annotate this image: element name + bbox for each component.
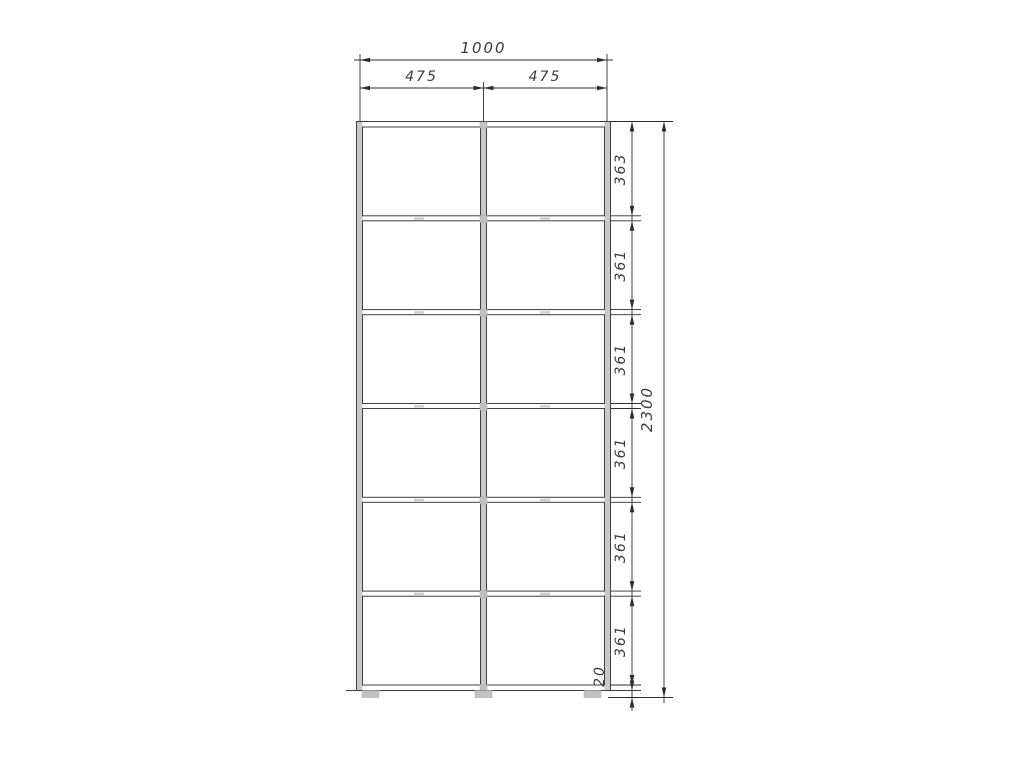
dowel-mark — [540, 499, 550, 502]
dowel-mark — [414, 593, 424, 596]
arrowhead-up — [630, 221, 635, 231]
dim-row-height-3: 361 — [613, 343, 629, 376]
cabinet-cell — [487, 596, 605, 685]
dim-column-width-2: 475 — [529, 69, 562, 85]
cabinet — [346, 122, 641, 698]
arrowhead-down — [630, 581, 635, 591]
arrowhead-down — [630, 487, 635, 497]
cabinet-cell — [487, 315, 605, 404]
dowel-mark — [414, 499, 424, 502]
cabinet-cell — [363, 127, 481, 216]
dim-row-height-6: 361 — [613, 624, 629, 657]
panel-connector — [480, 497, 487, 504]
dimension-top-columns: 475 475 — [360, 69, 607, 122]
cabinet-cell — [363, 409, 481, 498]
cabinet-cell — [487, 221, 605, 310]
arrowhead-down — [630, 394, 635, 404]
cabinet-cell — [363, 596, 481, 685]
arrowhead-left — [360, 86, 370, 91]
dim-total-height: 2300 — [638, 386, 656, 432]
dim-plinth-height: 20 — [592, 665, 608, 687]
cabinet-cell — [363, 502, 481, 591]
right-side-panel — [605, 122, 611, 690]
dim-row-height-2: 361 — [613, 249, 629, 282]
cabinet-foot — [362, 691, 379, 698]
panel-connector — [480, 309, 487, 316]
cabinet-cell — [487, 502, 605, 591]
cabinet-foot — [584, 691, 601, 698]
dowel-mark — [540, 593, 550, 596]
dim-column-width-1: 475 — [405, 69, 438, 85]
arrowhead-down — [630, 300, 635, 310]
arrowhead-right — [597, 58, 607, 63]
panel-connector — [480, 591, 487, 598]
dowel-mark — [540, 217, 550, 220]
arrowhead-left — [360, 58, 370, 63]
arrowhead-up — [630, 122, 635, 132]
cabinet-cell — [487, 409, 605, 498]
dowel-mark — [414, 311, 424, 314]
arrowhead-down — [630, 206, 635, 216]
cabinet-cell — [363, 315, 481, 404]
dowel-mark — [414, 405, 424, 408]
arrowhead-up — [630, 315, 635, 325]
technical-drawing: 1000 475 475 — [0, 0, 1024, 768]
cabinet-feet — [362, 691, 601, 698]
arrowhead-right — [597, 86, 607, 91]
arrowhead-up — [630, 596, 635, 606]
arrowhead-left — [484, 86, 494, 91]
panel-connector — [480, 122, 487, 128]
dim-total-width: 1000 — [460, 39, 506, 57]
cabinet-foot — [475, 691, 492, 698]
arrowhead-down — [630, 681, 635, 691]
dowel-mark — [540, 405, 550, 408]
arrowhead-down — [662, 688, 667, 698]
dim-row-height-5: 361 — [613, 530, 629, 563]
dowel-mark — [540, 311, 550, 314]
panel-connector — [480, 403, 487, 410]
arrowhead-up — [662, 122, 667, 132]
dimension-right-total: 2300 — [638, 122, 666, 704]
arrowhead-up — [630, 502, 635, 512]
drawing-canvas: 1000 475 475 — [0, 0, 1024, 768]
dim-row-height-4: 361 — [613, 437, 629, 470]
arrowhead-right — [474, 86, 484, 91]
left-side-panel — [357, 122, 363, 690]
cabinet-cell — [487, 127, 605, 216]
panel-connector — [480, 216, 487, 223]
dowel-mark — [414, 217, 424, 220]
arrowhead-up — [630, 698, 635, 708]
arrowhead-up — [630, 409, 635, 419]
dim-row-height-1: 363 — [613, 153, 629, 186]
cabinet-cell — [363, 221, 481, 310]
